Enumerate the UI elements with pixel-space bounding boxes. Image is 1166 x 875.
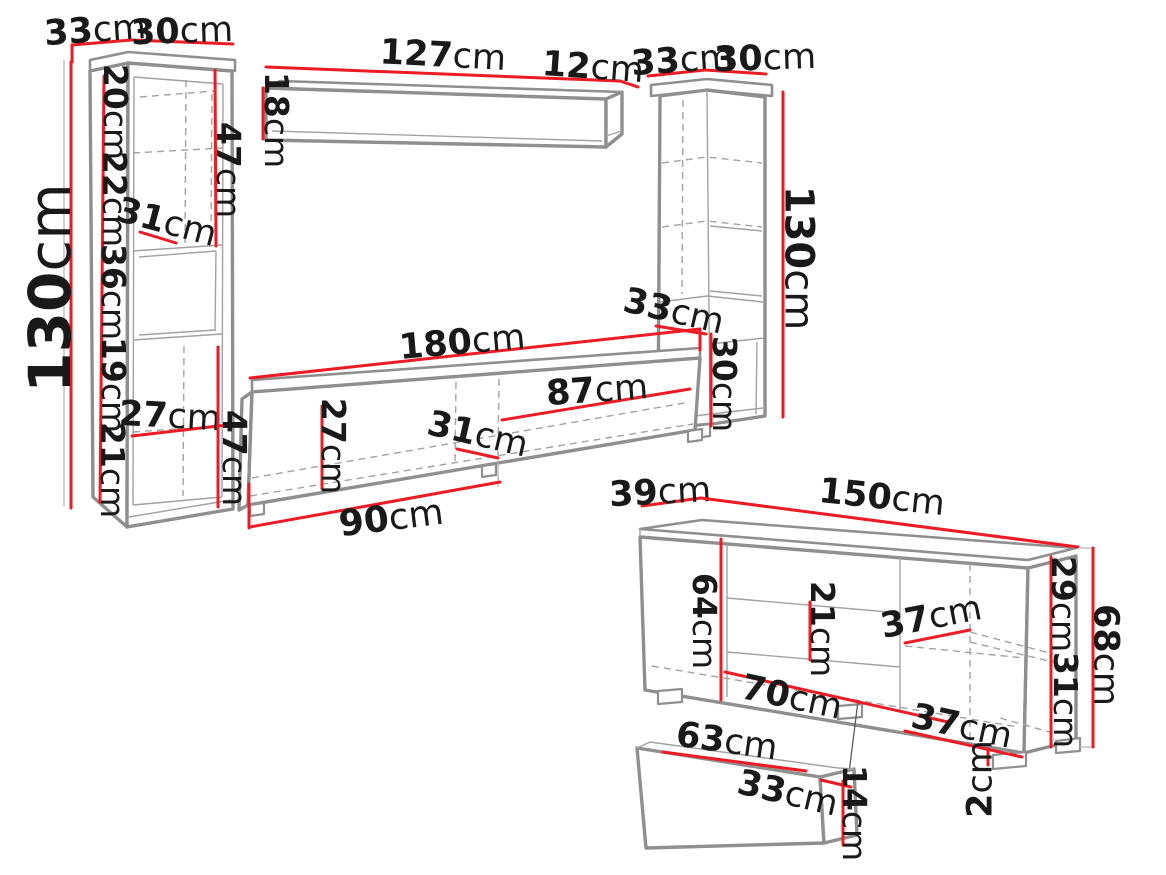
dim-label-sideboard-39cm: 39cm bbox=[608, 470, 712, 515]
dim-label-wall-shelf-127cm: 127cm bbox=[379, 32, 507, 79]
dim-label-tv-stand-27cm: 27cm bbox=[314, 398, 353, 494]
furniture-dimensions-diagram: 33cm30cm130cm20cm22cm36cm19cm21cm31cm47c… bbox=[0, 0, 1166, 875]
dim-label-sideboard-64cm: 64cm bbox=[685, 573, 724, 669]
dim-label-left-cabinet-20cm: 20cm bbox=[96, 64, 135, 160]
dim-label-left-cabinet-130cm: 130cm bbox=[16, 183, 84, 392]
dim-label-sideboard-21cm: 21cm bbox=[803, 581, 842, 677]
furniture-dimensions-page: 33cm30cm130cm20cm22cm36cm19cm21cm31cm47c… bbox=[0, 0, 1166, 875]
dim-label-left-cabinet-47cm: 47cm bbox=[209, 122, 248, 218]
dim-label-sideboard-31cm: 31cm bbox=[1046, 652, 1085, 748]
dim-label-sideboard-29cm: 29cm bbox=[1044, 556, 1083, 652]
dim-label-tv-stand-90cm: 90cm bbox=[337, 492, 446, 545]
dim-label-sideboard-68cm: 68cm bbox=[1085, 604, 1125, 706]
wall-shelf bbox=[266, 81, 622, 147]
dim-label-left-cabinet-21cm: 21cm bbox=[93, 422, 132, 518]
dim-label-left-cabinet-27cm: 27cm bbox=[118, 394, 222, 439]
dim-label-tv-stand-180cm: 180cm bbox=[397, 317, 526, 368]
dim-label-drawer-14cm: 14cm bbox=[835, 765, 874, 861]
dim-label-wall-shelf-18cm: 18cm bbox=[257, 72, 296, 168]
dim-label-tv-stand-87cm: 87cm bbox=[545, 367, 650, 414]
dim-label-right-cabinet-130cm: 130cm bbox=[776, 186, 822, 330]
dim-label-sideboard-2cm: 2cm bbox=[961, 740, 1001, 818]
dim-label-right-cabinet-30cm: 30cm bbox=[713, 37, 816, 81]
dim-label-tv-stand-47cm: 47cm bbox=[215, 410, 254, 506]
dim-label-right-cabinet-30cm: 30cm bbox=[705, 336, 744, 432]
dim-label-left-cabinet-36cm: 36cm bbox=[94, 244, 133, 340]
dim-label-left-cabinet-30cm: 30cm bbox=[130, 10, 233, 54]
